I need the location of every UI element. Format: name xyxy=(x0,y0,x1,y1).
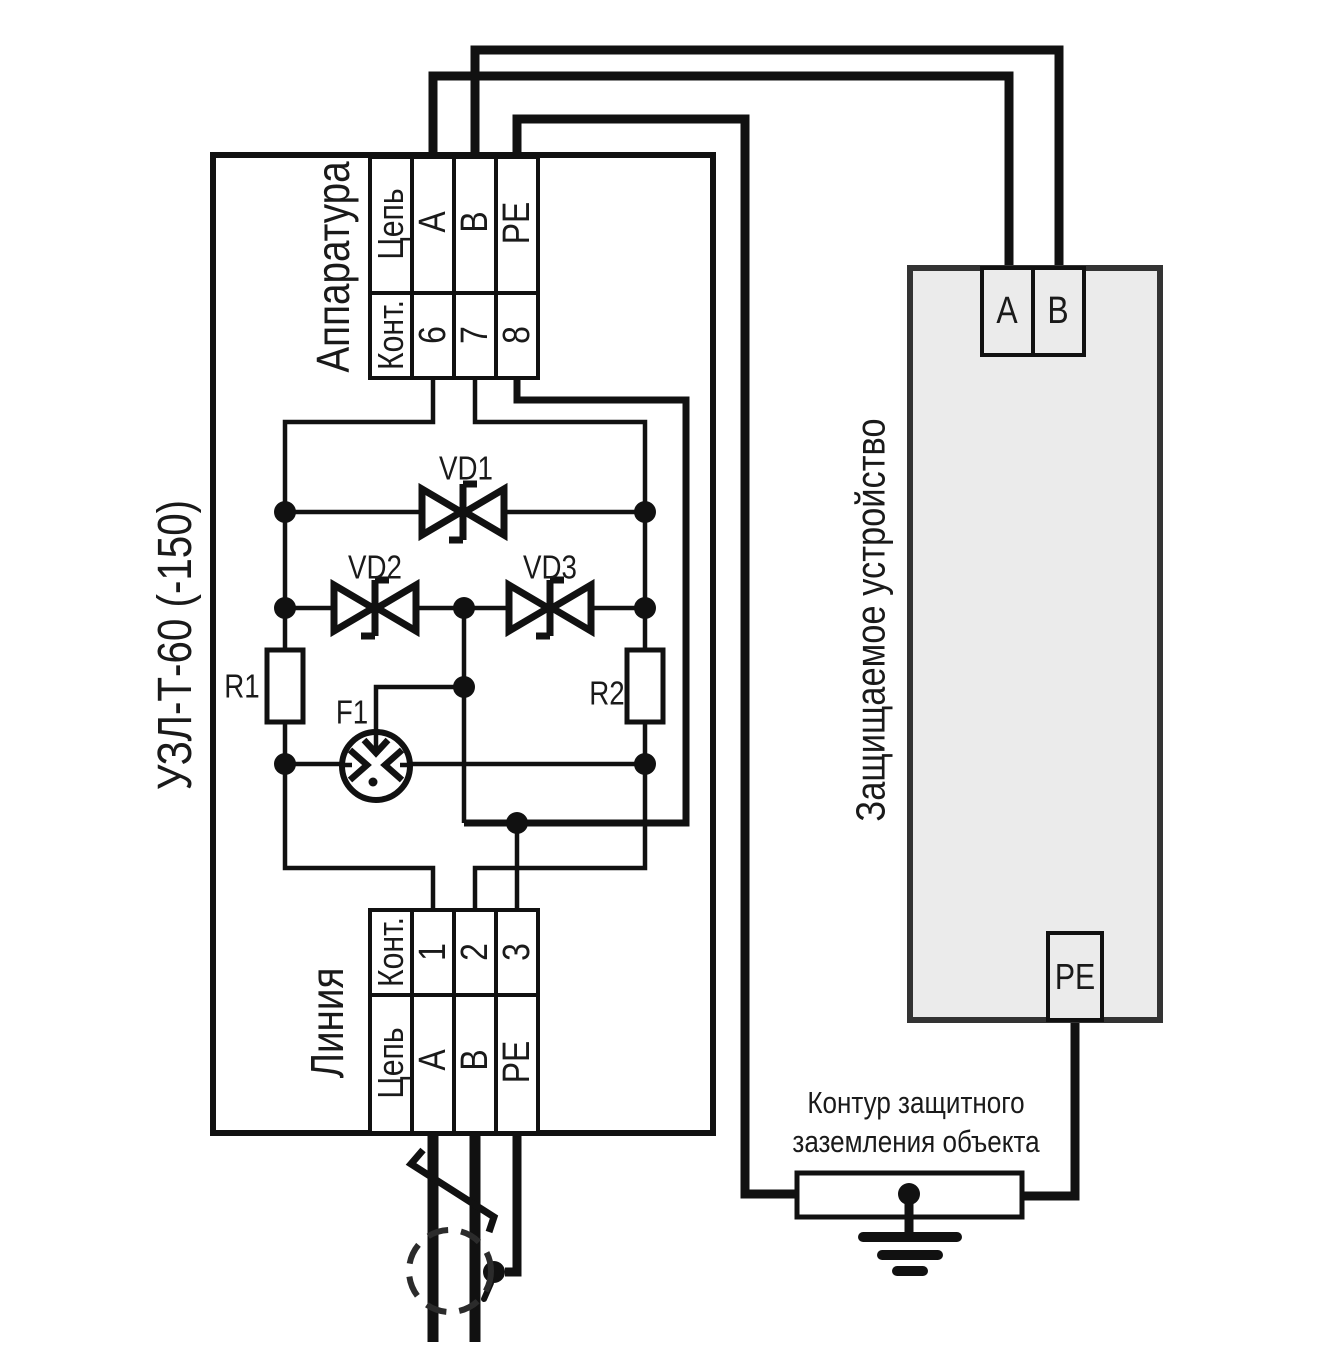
protected-device-terminal-pe-label: PE xyxy=(1055,959,1095,995)
line-terminal-contact-2: 2 xyxy=(456,943,494,961)
vd3-label: VD3 xyxy=(523,551,577,584)
twisted-pair-icon xyxy=(411,1150,494,1232)
line-terminal-circuit-a: A xyxy=(414,1049,452,1070)
arrester-f1-symbol xyxy=(342,732,410,800)
ground-loop-caption-line1: Контур защитного xyxy=(792,1083,1039,1122)
vd2-label: VD2 xyxy=(348,551,402,584)
uzl-title: УЗЛ-Т-60 (-150) xyxy=(152,500,200,790)
protected-device-box xyxy=(910,268,1160,1020)
junction-dot xyxy=(634,753,656,775)
vd1-label: VD1 xyxy=(439,452,493,485)
line-circuit-header: Цепь xyxy=(373,1027,409,1098)
line-terminal-contact-1: 1 xyxy=(414,943,452,961)
apparatus-terminal-circuit-a: A xyxy=(414,211,452,232)
f1-label: F1 xyxy=(336,696,368,729)
apparatus-circuit-header: Цепь xyxy=(373,188,409,259)
protected-device-terminal-b-label: B xyxy=(1047,292,1068,330)
junction-dot xyxy=(274,597,296,619)
ground-loop-caption: Контур защитного заземления объекта xyxy=(792,1083,1039,1161)
apparatus-terminal-contact-7: 7 xyxy=(456,326,494,344)
resistor-r1-symbol xyxy=(267,650,303,722)
junction-dot xyxy=(453,597,475,619)
line-terminal-circuit-b: B xyxy=(456,1049,494,1070)
r1-label: R1 xyxy=(224,670,259,703)
r2-label: R2 xyxy=(589,677,624,710)
line-terminal-contact-3: 3 xyxy=(498,943,536,961)
tvs-diode-vd1-symbol xyxy=(422,484,504,540)
line-block-label: Линия xyxy=(304,968,350,1079)
apparatus-terminal-circuit-pe: PE xyxy=(498,202,536,245)
resistor-r2-symbol xyxy=(627,650,663,722)
apparatus-contact-header: Конт. xyxy=(373,300,409,370)
shield-connection-dot xyxy=(483,1261,505,1283)
junction-dot xyxy=(274,501,296,523)
junction-dot xyxy=(274,753,296,775)
tvs-diode-vd3-symbol xyxy=(509,580,591,636)
earth-ground-icon xyxy=(863,1237,957,1271)
arrester-gas-dot xyxy=(369,778,378,787)
apparatus-terminal-contact-8: 8 xyxy=(498,326,536,344)
wire-line-pe-to-shield xyxy=(505,1133,517,1272)
apparatus-block-label: Аппаратура xyxy=(310,161,356,372)
apparatus-terminal-circuit-b: B xyxy=(456,211,494,232)
line-contact-header: Конт. xyxy=(373,917,409,987)
protected-device-label: Защищаемое устройство xyxy=(851,418,892,821)
junction-dot xyxy=(453,676,475,698)
junction-dot xyxy=(634,501,656,523)
apparatus-terminal-contact-6: 6 xyxy=(414,326,452,344)
protected-device-terminal-a-label: A xyxy=(996,292,1017,330)
tvs-diode-vd2-symbol xyxy=(334,580,416,636)
ground-loop-caption-line2: заземления объекта xyxy=(792,1122,1039,1161)
ground-busbar xyxy=(797,1173,1022,1271)
junction-dot xyxy=(506,812,528,834)
junction-dot xyxy=(634,597,656,619)
schematic-page: УЗЛ-Т-60 (-150) Аппаратура Цепь Конт. A … xyxy=(0,0,1343,1371)
line-terminal-circuit-pe: PE xyxy=(498,1041,536,1084)
